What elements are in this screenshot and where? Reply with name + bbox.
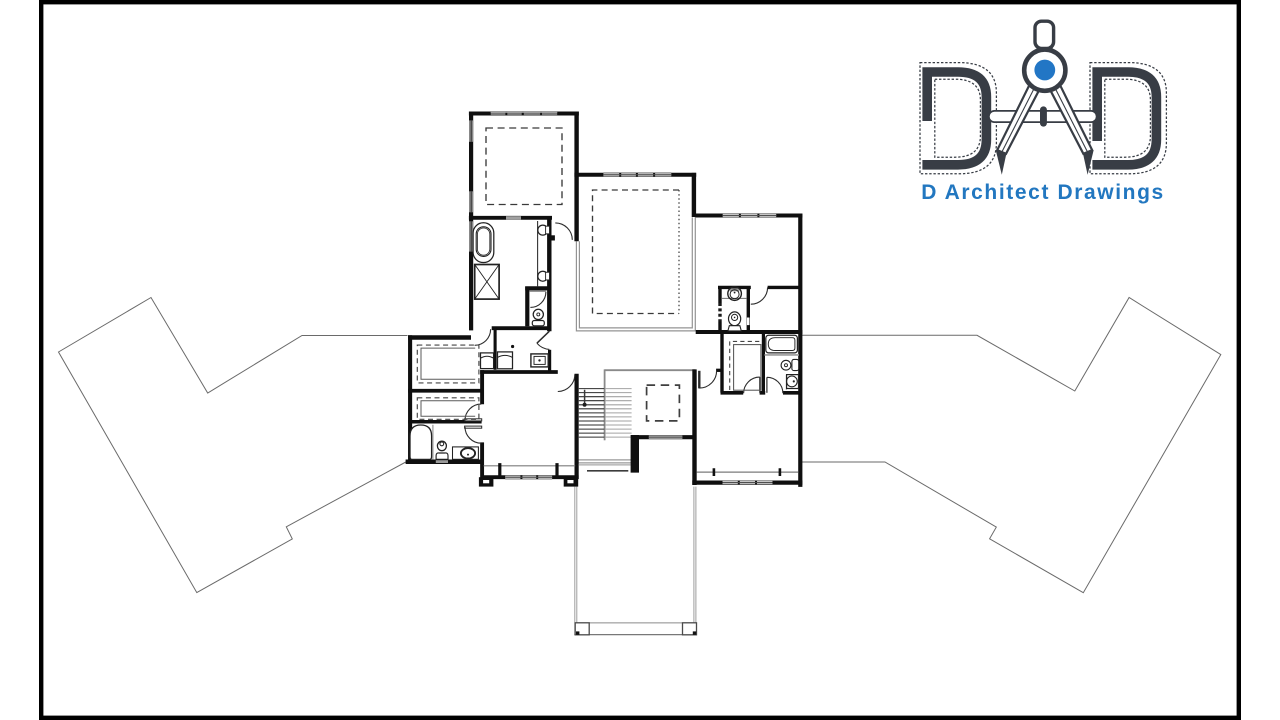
- svg-text:D Architect Drawings: D Architect Drawings: [921, 181, 1165, 204]
